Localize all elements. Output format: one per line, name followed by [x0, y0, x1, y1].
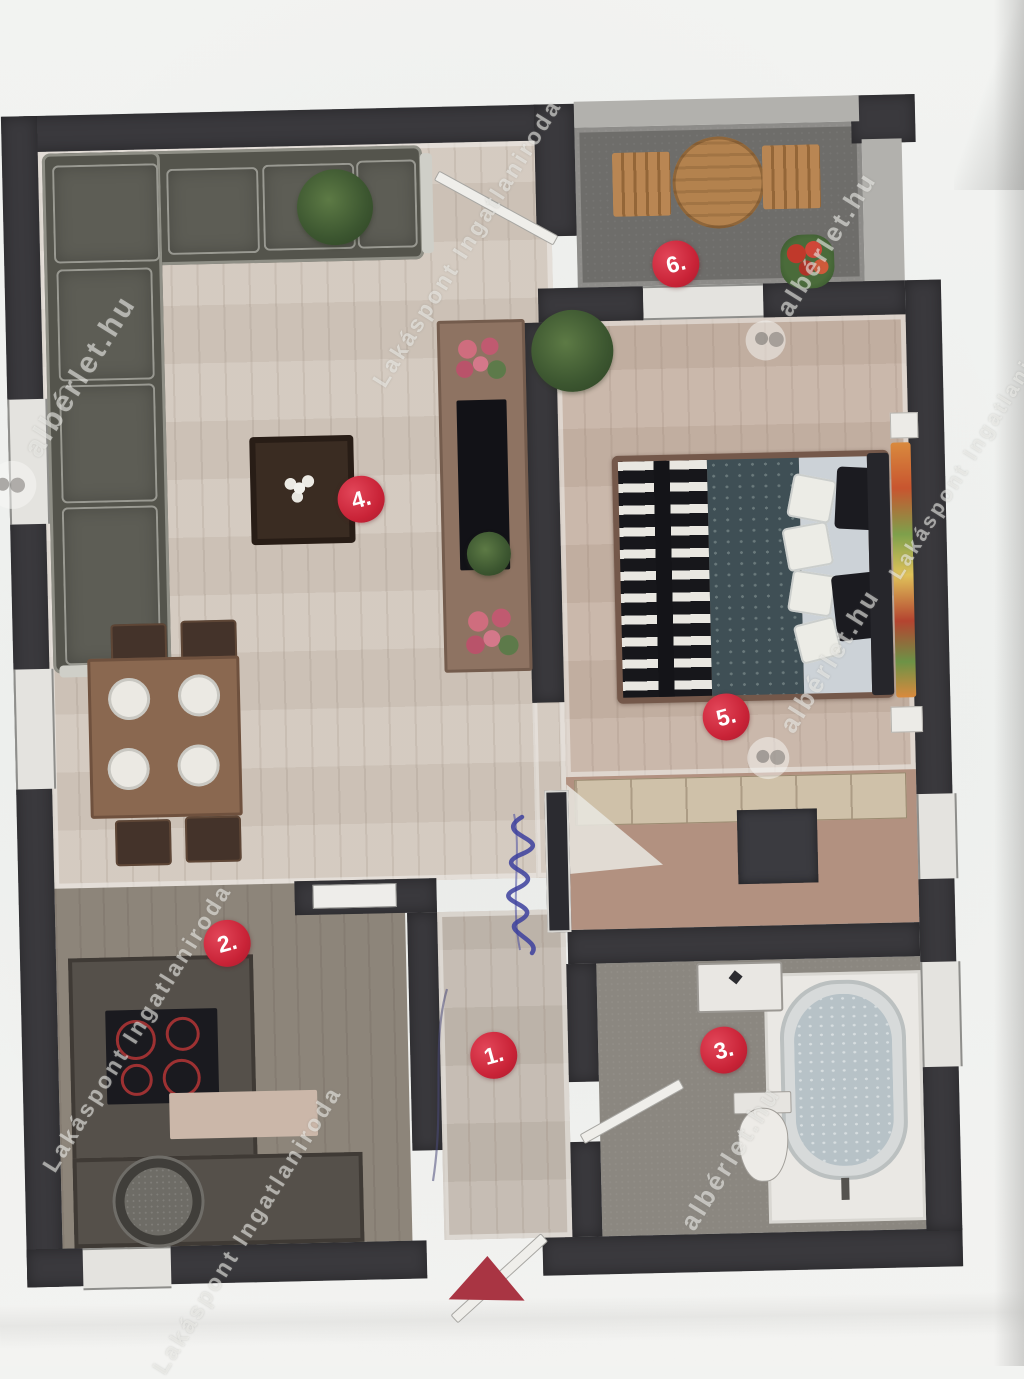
sofa-cushion	[52, 163, 160, 263]
window	[13, 669, 56, 790]
sofa-cushion	[56, 267, 155, 381]
wall	[763, 280, 906, 317]
sofa-armrest	[420, 153, 434, 253]
bed-striped-blanket	[618, 460, 712, 698]
nightstand	[890, 706, 923, 733]
dresser	[737, 808, 819, 884]
marker-label: 1.	[481, 1040, 507, 1071]
window	[7, 399, 50, 525]
bedroom-door-leaf	[544, 790, 571, 933]
dining-table	[87, 656, 243, 819]
kitchen-mat	[169, 1090, 318, 1139]
scanned-floor-plan-page: { "watermarks": { "alberlet_text": "albé…	[0, 0, 1024, 1366]
burner	[162, 1058, 201, 1097]
wall	[570, 1141, 602, 1237]
floor-plan: 1. 2. 3. 4. 5. 6.	[0, 93, 965, 1286]
window	[916, 793, 958, 879]
wall	[851, 94, 916, 143]
terrace-chair	[762, 144, 821, 209]
marker-label: 6.	[663, 248, 689, 279]
pillow	[787, 569, 837, 617]
marker-label: 3.	[711, 1035, 737, 1066]
wall	[407, 912, 442, 1151]
terrace-window	[643, 284, 764, 321]
wall	[542, 1228, 963, 1276]
marker-label: 5.	[713, 701, 739, 732]
burner	[120, 1064, 153, 1097]
wall-niche	[312, 883, 397, 909]
stove-cooktop	[105, 1008, 219, 1105]
terrace-side-wall	[862, 138, 905, 285]
table-decor-flowers	[277, 466, 322, 511]
wall	[534, 104, 577, 237]
wall	[566, 963, 599, 1082]
washbasin	[696, 961, 783, 1013]
nightstand	[890, 412, 919, 439]
bathtub-basin	[793, 993, 895, 1167]
vase-flowers	[458, 603, 525, 662]
pillow	[786, 473, 837, 524]
flower-pot	[780, 234, 835, 289]
window	[83, 1246, 172, 1290]
pillow	[781, 521, 834, 573]
terrace-chair	[612, 152, 671, 217]
sofa-cushion	[166, 167, 260, 255]
burner	[115, 1019, 156, 1060]
paper-edge-shadow	[994, 0, 1024, 1366]
sofa-cushion	[59, 383, 158, 503]
dining-chair	[115, 819, 172, 866]
dining-chair	[185, 816, 242, 863]
burner	[165, 1016, 200, 1051]
marker-label: 2.	[214, 928, 240, 959]
bathtub-drain	[841, 1178, 849, 1200]
marker-label: 4.	[348, 484, 374, 515]
vase-flowers	[448, 333, 513, 384]
entrance-arrow	[449, 1255, 526, 1300]
window	[920, 961, 962, 1067]
